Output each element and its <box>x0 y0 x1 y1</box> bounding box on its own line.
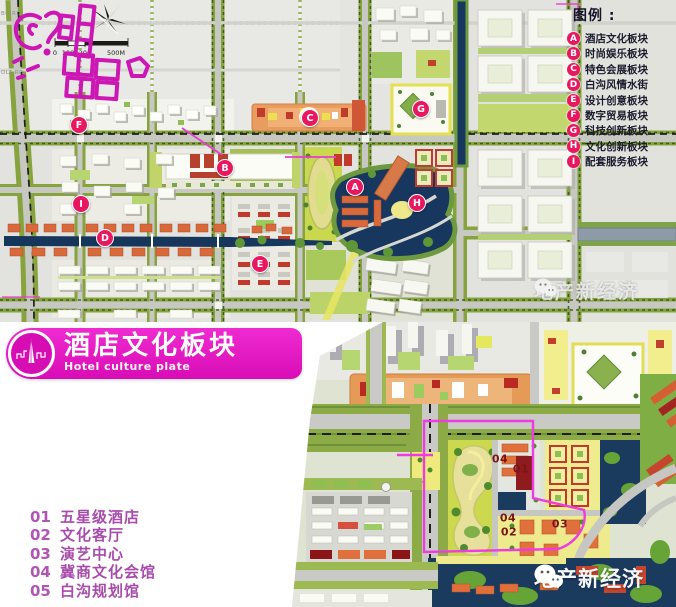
program-list-item: 05 白沟规划馆 <box>30 580 156 598</box>
program-list: 01 五星级酒店 02 文化客厅 03 演艺中心 04 冀商文化会馆 <box>30 506 156 598</box>
legend-letter-badge: G <box>567 124 580 137</box>
tower-icon <box>8 330 55 377</box>
legend-item: H 文化创新板块 <box>567 140 675 153</box>
plate-banner: 酒店文化板块 Hotel culture plate <box>6 328 302 379</box>
detail-map-label: 02 <box>501 526 517 539</box>
map-marker: F <box>70 116 88 134</box>
map-marker-letter: E <box>257 259 264 270</box>
legend-item-label: 文化创新板块 <box>585 139 648 154</box>
map-marker: G <box>412 100 430 118</box>
legend-item-label: 配套服务板块 <box>585 154 648 169</box>
legend-letter-badge: E <box>567 94 580 107</box>
map-marker: E <box>251 255 269 273</box>
map-marker-letter: C <box>307 113 314 124</box>
detail-park <box>448 440 498 560</box>
map-marker: A <box>346 178 364 196</box>
program-list-item: 04 冀商文化会馆 <box>30 561 156 579</box>
detail-map-label: 04 <box>492 453 508 466</box>
map-marker-letter: D <box>101 233 109 244</box>
map-marker: D <box>96 229 114 247</box>
legend-letter-badge: C <box>567 63 580 76</box>
legend-item: I 配套服务板块 <box>567 155 675 168</box>
poster-page: 图例 : A 酒店文化板块 B 时尚娱乐板块 C 特色会展板块 <box>0 0 676 607</box>
legend-letter-badge: D <box>567 78 580 91</box>
program-item-number: 01 <box>30 508 60 526</box>
legend-item-label: 白沟风情水街 <box>585 77 648 92</box>
map-marker: I <box>72 195 90 213</box>
map-marker-letter: H <box>413 198 421 209</box>
map-marker: H <box>408 194 426 212</box>
legend-item-label: 特色会展板块 <box>585 62 648 77</box>
legend-letter-badge: A <box>567 32 580 45</box>
program-item-number: 04 <box>30 563 60 581</box>
map-marker: B <box>216 159 234 177</box>
program-list-item: 01 五星级酒店 <box>30 506 156 524</box>
legend-item: E 设计创意板块 <box>567 94 675 107</box>
map-marker-letter: B <box>221 163 228 174</box>
legend-item: G 科技创新板块 <box>567 124 675 137</box>
program-list-item: 02 文化客厅 <box>30 524 156 542</box>
program-item-label: 白沟规划馆 <box>60 580 140 601</box>
legend-item: C 特色会展板块 <box>567 63 675 76</box>
map-marker-letter: G <box>417 104 425 115</box>
legend-title: 图例 : <box>573 5 675 25</box>
detail-map-label: 04 <box>500 512 516 525</box>
wechat-icon <box>534 277 558 299</box>
plate-subtitle: Hotel culture plate <box>64 360 238 373</box>
concept-sketch <box>0 0 150 108</box>
wechat-icon <box>534 563 564 591</box>
legend-item: D 白沟风情水街 <box>567 78 675 91</box>
legend-letter-badge: H <box>567 140 580 153</box>
plate-title: 酒店文化板块 <box>64 332 238 361</box>
legend: 图例 : A 酒店文化板块 B 时尚娱乐板块 C 特色会展板块 <box>567 3 675 171</box>
watermark-bottom: 地产新经济 <box>534 563 644 593</box>
legend-item: A 酒店文化板块 <box>567 32 675 45</box>
program-item-number: 03 <box>30 545 60 563</box>
legend-item: F 数字贸易板块 <box>567 109 675 122</box>
legend-item: B 时尚娱乐板块 <box>567 47 675 60</box>
watermark-top: 地产新经济 <box>534 277 639 304</box>
legend-letter-badge: I <box>567 155 580 168</box>
map-marker-letter: A <box>351 182 358 193</box>
map-marker-letter: I <box>79 199 83 210</box>
legend-letter-badge: F <box>567 109 580 122</box>
program-item-number: 05 <box>30 582 60 600</box>
detail-map-label: 03 <box>552 518 568 531</box>
map-marker-letter: F <box>76 120 83 131</box>
program-item-number: 02 <box>30 526 60 544</box>
legend-letter-badge: B <box>567 47 580 60</box>
legend-item-label: 酒店文化板块 <box>585 31 648 46</box>
detail-map-label: 01 <box>513 463 529 476</box>
legend-item-label: 设计创意板块 <box>585 93 648 108</box>
map-marker: C <box>301 109 319 127</box>
legend-item-label: 时尚娱乐板块 <box>585 46 648 61</box>
legend-items: A 酒店文化板块 B 时尚娱乐板块 C 特色会展板块 D 白沟风情水街 <box>567 32 675 168</box>
program-list-item: 03 演艺中心 <box>30 543 156 561</box>
legend-item-label: 数字贸易板块 <box>585 108 648 123</box>
legend-item-label: 科技创新板块 <box>585 123 648 138</box>
